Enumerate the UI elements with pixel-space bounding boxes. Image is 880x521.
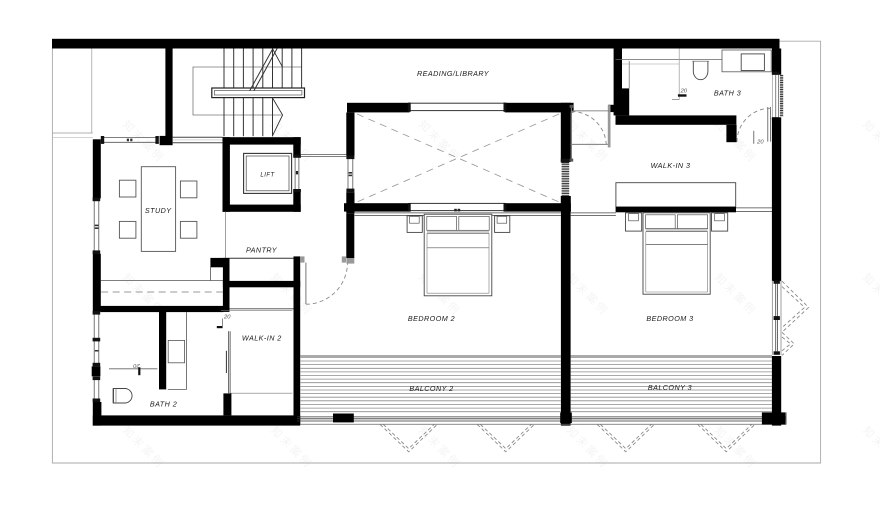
svg-text:STUDY: STUDY bbox=[145, 206, 172, 215]
svg-text:WALK-IN 3: WALK-IN 3 bbox=[651, 161, 691, 170]
svg-text:BEDROOM 3: BEDROOM 3 bbox=[646, 314, 693, 323]
svg-text:BEDROOM 2: BEDROOM 2 bbox=[408, 314, 455, 323]
svg-text:20: 20 bbox=[223, 315, 231, 321]
svg-text:READING/LIBRARY: READING/LIBRARY bbox=[417, 69, 490, 78]
svg-text:BALCONY 3: BALCONY 3 bbox=[648, 383, 692, 392]
svg-text:PANTRY: PANTRY bbox=[246, 245, 278, 254]
svg-text:20: 20 bbox=[680, 89, 688, 95]
svg-text:BATH 3: BATH 3 bbox=[714, 88, 741, 97]
svg-text:BALCONY 2: BALCONY 2 bbox=[409, 384, 453, 393]
svg-text:BATH 2: BATH 2 bbox=[150, 399, 177, 408]
svg-text:20: 20 bbox=[756, 139, 764, 145]
svg-text:LIFT: LIFT bbox=[260, 172, 275, 178]
svg-text:WALK-IN 2: WALK-IN 2 bbox=[242, 334, 282, 343]
svg-text:20: 20 bbox=[133, 362, 141, 368]
